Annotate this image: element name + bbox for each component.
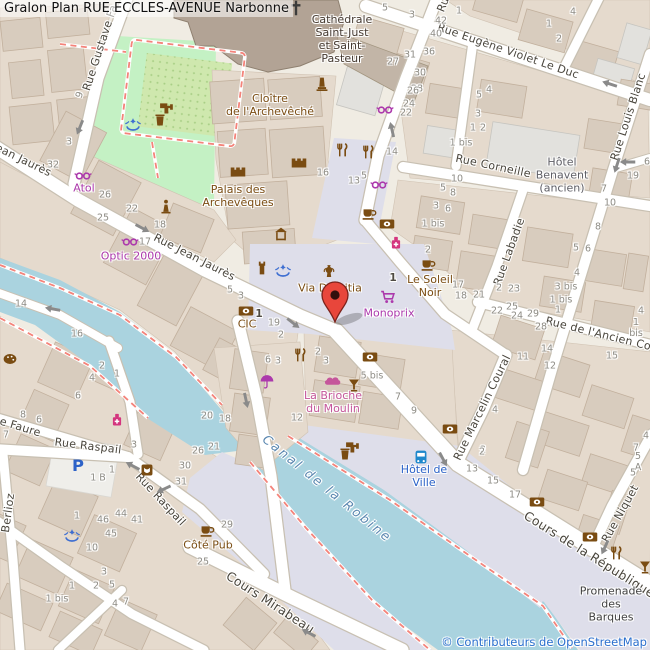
map-canvas <box>0 0 650 650</box>
osm-attribution-link[interactable]: © Contributeurs de OpenStreetMap <box>441 635 647 649</box>
map[interactable]: P <box>0 0 650 650</box>
map-title: Gralon Plan RUE ECCLES-AVENUE Narbonne <box>0 0 293 17</box>
